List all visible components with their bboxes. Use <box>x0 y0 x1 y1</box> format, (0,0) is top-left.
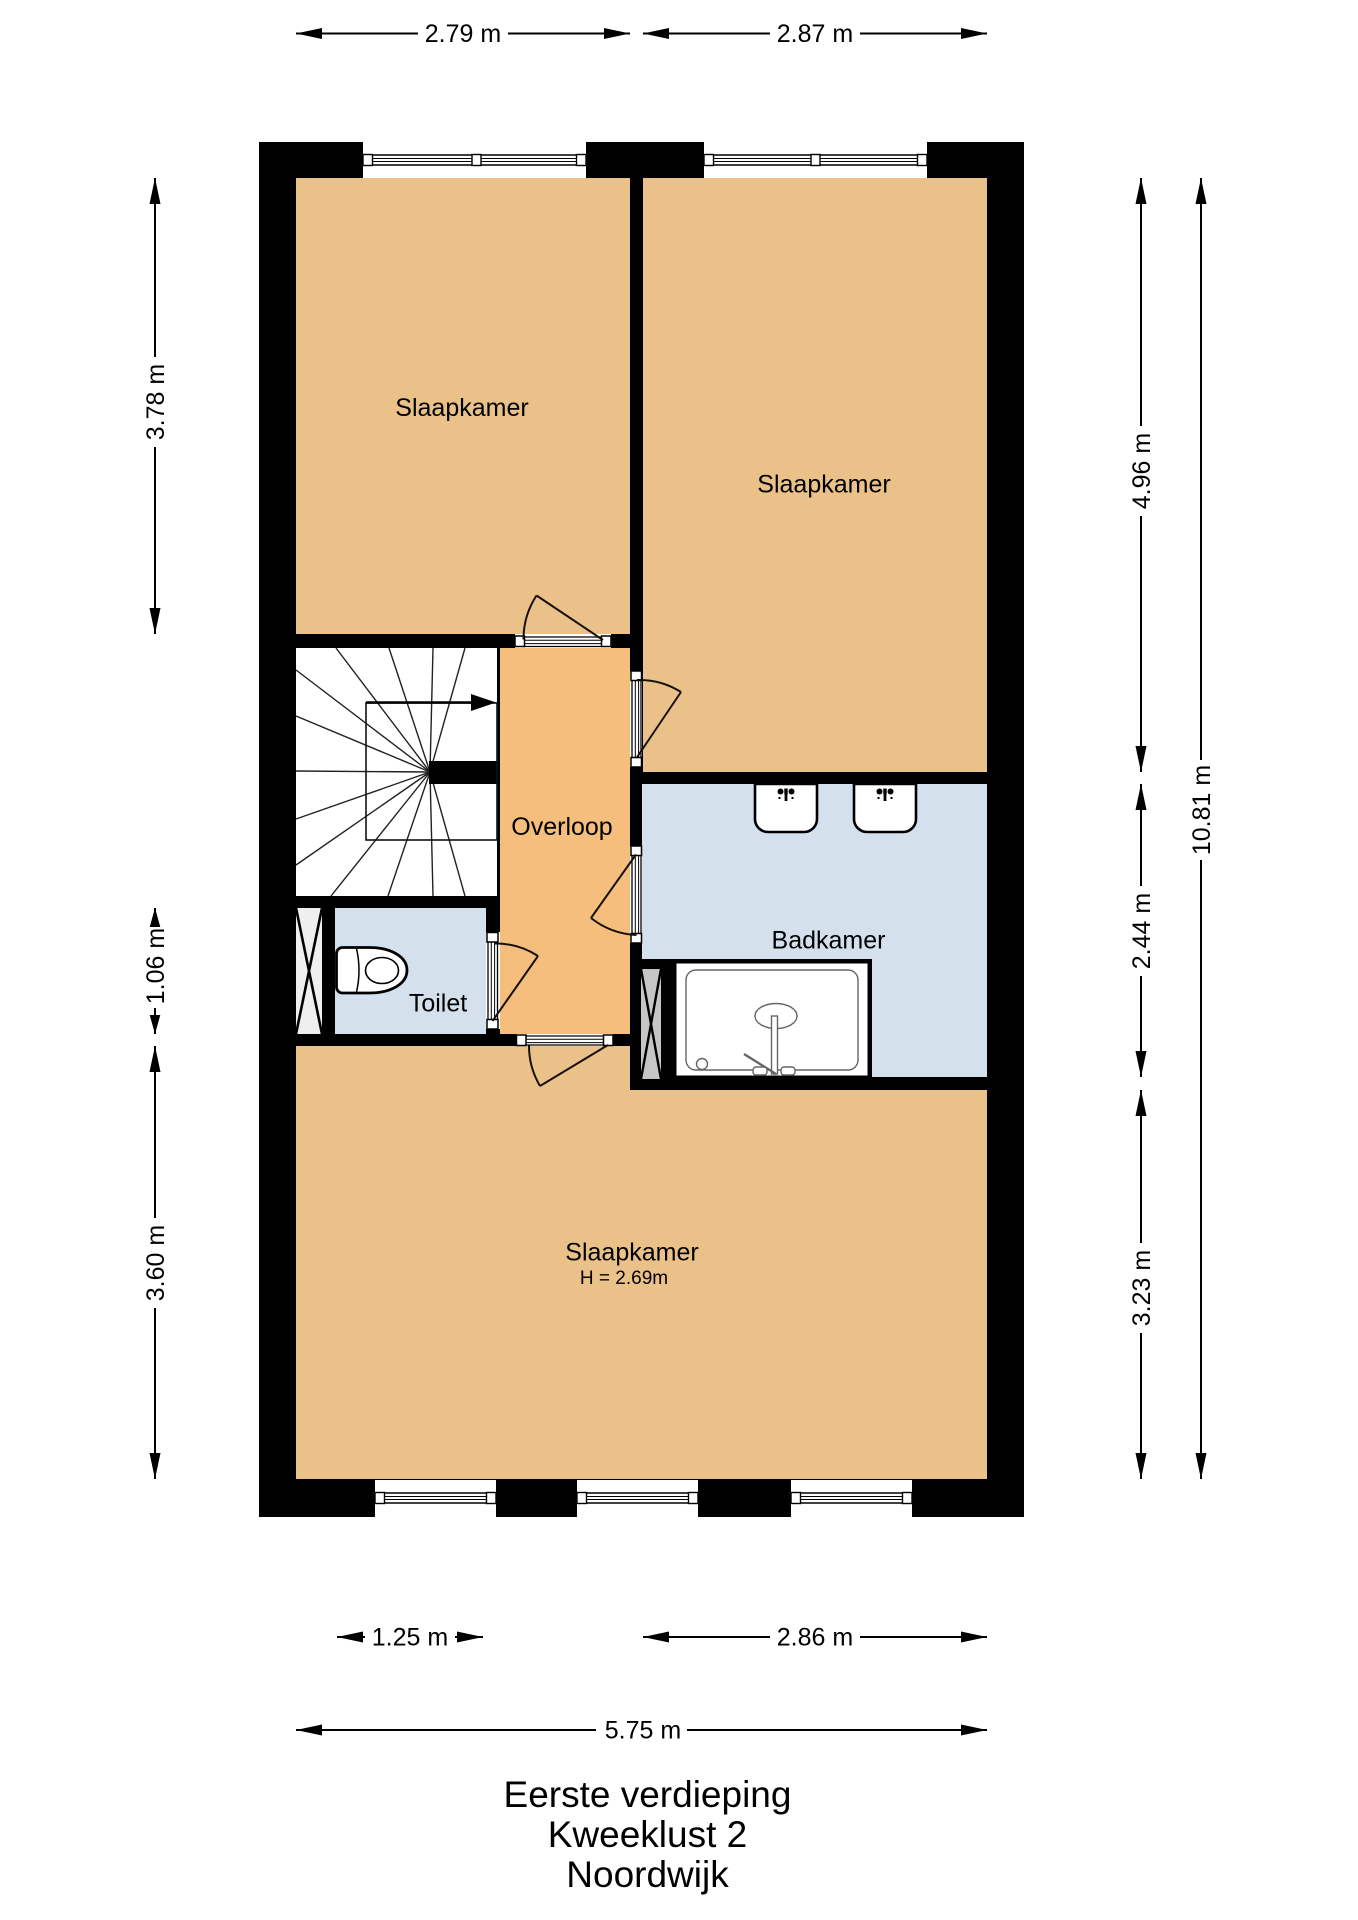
svg-text:4.96 m: 4.96 m <box>1128 433 1156 509</box>
svg-text:10.81 m: 10.81 m <box>1188 765 1216 855</box>
svg-text:1.25 m: 1.25 m <box>372 1624 448 1652</box>
svg-text:2.87 m: 2.87 m <box>777 20 853 48</box>
svg-text:Toilet: Toilet <box>409 990 467 1018</box>
svg-text:3.78 m: 3.78 m <box>142 364 170 440</box>
svg-text:Slaapkamer: Slaapkamer <box>565 1239 698 1267</box>
svg-text:Noordwijk: Noordwijk <box>566 1854 729 1895</box>
svg-text:3.23 m: 3.23 m <box>1128 1250 1156 1326</box>
svg-text:Slaapkamer: Slaapkamer <box>395 394 528 422</box>
svg-text:3.60 m: 3.60 m <box>142 1225 170 1301</box>
svg-text:H = 2.69m: H = 2.69m <box>580 1268 668 1289</box>
svg-text:2.86 m: 2.86 m <box>777 1624 853 1652</box>
svg-text:Kweeklust 2: Kweeklust 2 <box>548 1814 748 1855</box>
svg-text:Overloop: Overloop <box>511 813 612 841</box>
svg-text:Badkamer: Badkamer <box>772 927 886 955</box>
svg-text:Slaapkamer: Slaapkamer <box>757 471 890 499</box>
svg-text:1.06 m: 1.06 m <box>142 928 170 1004</box>
svg-text:2.44 m: 2.44 m <box>1128 893 1156 969</box>
svg-text:2.79 m: 2.79 m <box>425 20 501 48</box>
svg-text:5.75 m: 5.75 m <box>605 1717 681 1745</box>
svg-text:Eerste verdieping: Eerste verdieping <box>504 1774 792 1815</box>
